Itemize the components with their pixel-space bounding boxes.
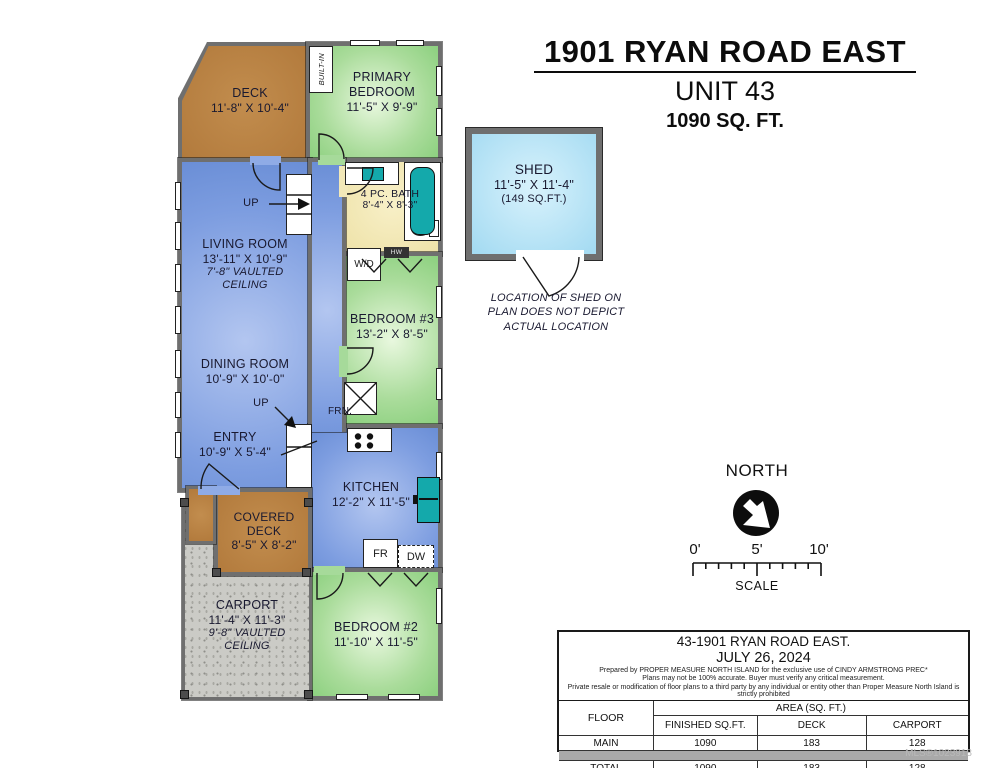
window-segment xyxy=(175,432,181,458)
room-label-dining-room: DINING ROOM 10'-9" X 10'-0" xyxy=(183,357,307,386)
stairs-up-entry xyxy=(286,424,312,488)
table-row-total-finished: 1090 xyxy=(654,761,758,768)
dishwasher: DW xyxy=(398,545,434,568)
fridge: FR xyxy=(363,539,398,568)
door-opening xyxy=(318,155,345,165)
window-segment xyxy=(436,368,442,400)
room-hallway xyxy=(308,158,346,432)
room-label-deck: DECK 11'-8" X 10'-4" xyxy=(190,86,310,115)
window-segment xyxy=(175,306,181,334)
room-label-shed: SHED 11'-5" X 11'-4" (149 SQ.FT.) xyxy=(472,162,596,206)
table-row-total-deck: 183 xyxy=(758,761,867,768)
window-segment xyxy=(436,108,442,136)
col-header-finished: FINISHED SQ.FT. xyxy=(654,716,758,736)
page-title: 1901 RYAN ROAD EAST UNIT 43 1090 SQ. FT. xyxy=(475,34,975,133)
room-label-bedroom2: BEDROOM #2 11'-10" X 11'-5" xyxy=(316,620,436,649)
hot-water-tank: HW xyxy=(384,247,409,258)
door-opening xyxy=(198,486,240,495)
window-segment xyxy=(175,392,181,418)
address-title: 1901 RYAN ROAD EAST xyxy=(534,34,916,73)
door-opening xyxy=(339,346,348,377)
room-label-kitchen: KITCHEN 12'-2" X 11'-5" xyxy=(316,480,426,509)
info-table: 43-1901 RYAN ROAD EAST. JULY 26, 2024 Pr… xyxy=(557,630,970,752)
scale-tick-0: 0' xyxy=(683,541,707,558)
room-label-living-room: LIVING ROOM 13'-11" X 10'-9" 7'-8" VAULT… xyxy=(183,237,307,292)
door-opening xyxy=(250,156,281,165)
shed-door-gap xyxy=(516,250,584,263)
window-segment xyxy=(350,40,380,46)
table-row-main-floor: MAIN xyxy=(559,736,654,751)
unit-title: UNIT 43 xyxy=(475,76,975,107)
stairs-up-top xyxy=(286,174,312,235)
room-label-bedroom3: BEDROOM #3 13'-2" X 8'-5" xyxy=(342,312,442,341)
col-header-deck: DECK xyxy=(758,716,867,736)
bath-sink xyxy=(362,167,384,181)
window-segment xyxy=(388,694,420,700)
post xyxy=(180,690,189,699)
col-header-area: AREA (SQ. FT.) xyxy=(654,701,968,716)
scale-ruler xyxy=(692,561,822,579)
built-in-closet: BUILT-IN xyxy=(309,46,333,93)
window-segment xyxy=(175,264,181,292)
table-disclaimer-1: Prepared by PROPER MEASURE NORTH ISLAND … xyxy=(559,667,968,674)
table-row-total-floor: TOTAL xyxy=(559,761,654,768)
washer-dryer: W/D xyxy=(347,248,381,281)
table-title: 43-1901 RYAN ROAD EAST. xyxy=(559,634,968,649)
window-segment xyxy=(396,40,424,46)
scale-label: SCALE xyxy=(692,579,822,593)
window-segment xyxy=(175,222,181,250)
shed-location-note: LOCATION OF SHED ON PLAN DOES NOT DEPICT… xyxy=(486,291,626,334)
table-row-total-carport: 128 xyxy=(867,761,968,768)
table-row-main-deck: 183 xyxy=(758,736,867,751)
col-header-floor: FLOOR xyxy=(559,701,654,736)
room-label-carport: CARPORT 11'-4" X 11'-3" 9'-8" VAULTED CE… xyxy=(192,598,302,653)
window-segment xyxy=(436,66,442,96)
table-disclaimer-3: Private resale or modification of floor … xyxy=(559,684,968,699)
room-label-covered-deck: COVERED DECK 8'-5" X 8'-2" xyxy=(224,510,304,552)
room-label-primary-bedroom: PRIMARY BEDROOM 11'-5" X 9'-9" xyxy=(336,70,428,114)
table-date: JULY 26, 2024 xyxy=(559,650,968,666)
furnace-label: FRN. xyxy=(322,406,366,418)
table-disclaimer-2: Plans may not be 100% accurate. Buyer mu… xyxy=(559,675,968,682)
room-label-bath: 4 PC. BATH 8'-4" X 8'-3" xyxy=(356,188,424,212)
table-row-main-finished: 1090 xyxy=(654,736,758,751)
stove xyxy=(347,428,392,452)
up-label-entry: UP xyxy=(246,397,276,410)
window-segment xyxy=(175,350,181,378)
floor-plan-page: 1901 RYAN ROAD EAST UNIT 43 1090 SQ. FT. xyxy=(0,0,994,768)
scale-tick-5: 5' xyxy=(745,541,769,558)
window-segment xyxy=(436,452,442,480)
post xyxy=(212,568,221,577)
room-label-entry: ENTRY 10'-9" X 5'-4" xyxy=(183,430,287,459)
north-label: NORTH xyxy=(707,461,807,481)
window-segment xyxy=(336,694,368,700)
up-label-living: UP xyxy=(236,197,266,210)
window-segment xyxy=(175,182,181,210)
post xyxy=(304,498,313,507)
post xyxy=(180,498,189,507)
col-header-carport: CARPORT xyxy=(867,716,968,736)
window-segment xyxy=(436,588,442,624)
north-arrow-icon xyxy=(730,487,782,539)
scale-tick-10: 10' xyxy=(803,541,835,558)
post xyxy=(304,690,313,699)
mls-watermark: MLS®1023918 xyxy=(880,748,972,759)
door-opening xyxy=(314,566,345,575)
post xyxy=(302,568,311,577)
